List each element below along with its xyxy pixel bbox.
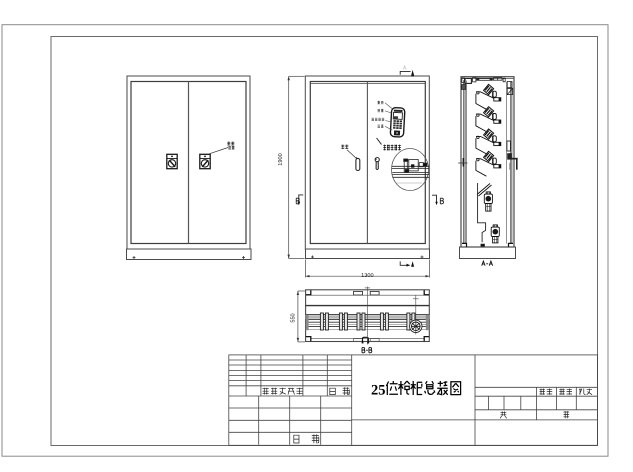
svg-text:550: 550 <box>291 313 297 322</box>
svg-text:25: 25 <box>371 383 386 399</box>
svg-text:1300: 1300 <box>361 273 373 279</box>
svg-text:1900: 1900 <box>278 153 284 165</box>
